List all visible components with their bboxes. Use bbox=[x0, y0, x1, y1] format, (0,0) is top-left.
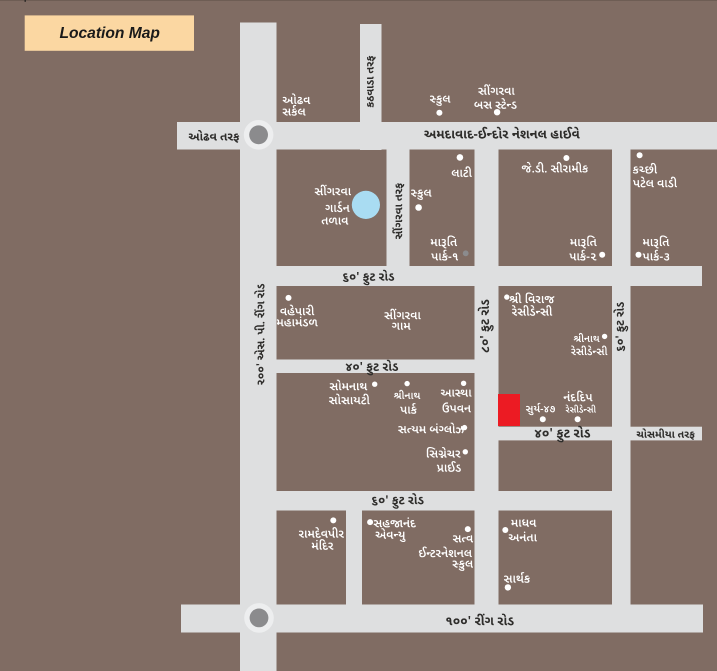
svg-text:Location Map: Location Map bbox=[59, 25, 160, 42]
